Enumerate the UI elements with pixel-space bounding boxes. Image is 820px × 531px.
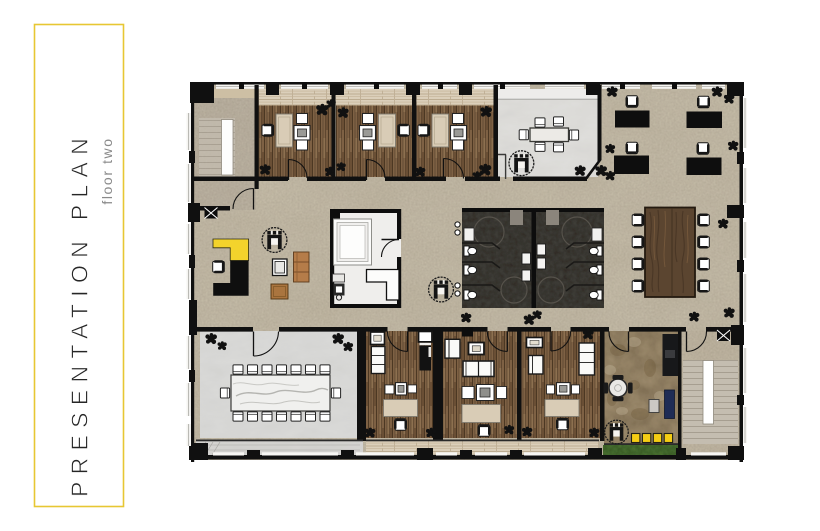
svg-text:floor two: floor two (99, 137, 115, 204)
svg-text:PRESENTATION PLAN: PRESENTATION PLAN (67, 131, 93, 497)
